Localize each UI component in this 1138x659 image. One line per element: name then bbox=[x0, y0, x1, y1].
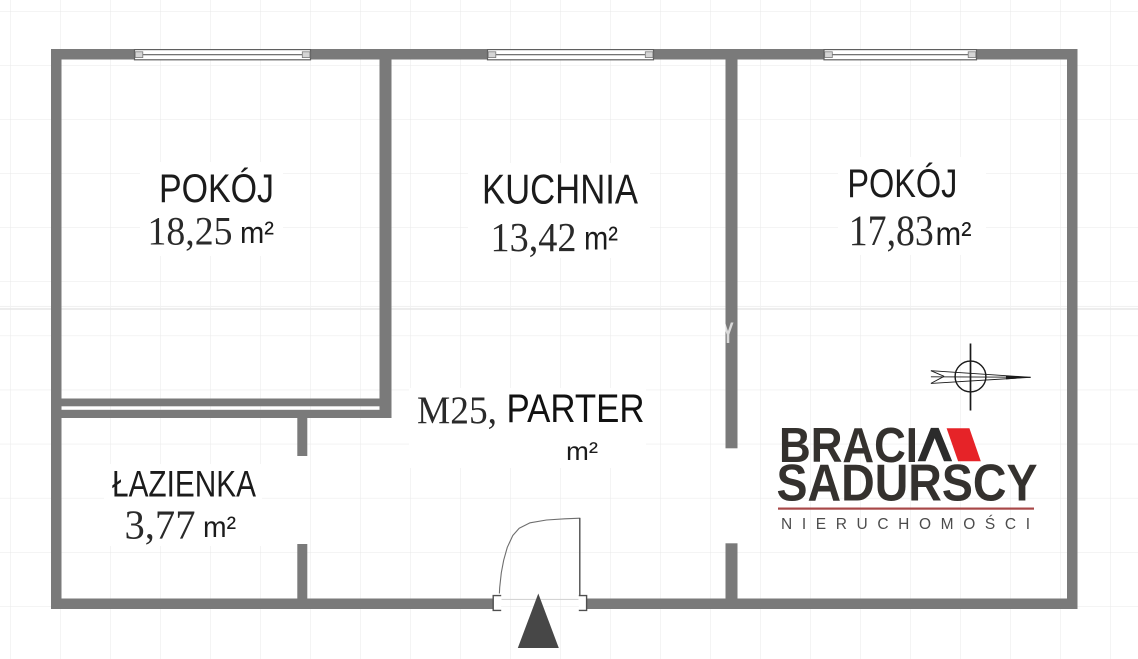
svg-text:POKÓJ: POKÓJ bbox=[847, 161, 957, 206]
svg-text:3,77: 3,77 bbox=[125, 501, 196, 547]
svg-text:KUCHNIA: KUCHNIA bbox=[482, 165, 638, 212]
svg-text:m²: m² bbox=[566, 436, 598, 466]
svg-text:m²: m² bbox=[203, 511, 236, 544]
svg-text:18,25: 18,25 bbox=[148, 209, 233, 254]
svg-text:ŁAZIENKA: ŁAZIENKA bbox=[112, 463, 256, 505]
svg-text:POKÓJ: POKÓJ bbox=[159, 166, 274, 211]
svg-text:M25,: M25, bbox=[417, 388, 497, 432]
svg-text:SADURSCY: SADURSCY bbox=[777, 454, 1038, 512]
svg-text:PARTER: PARTER bbox=[507, 387, 645, 431]
svg-text:Y: Y bbox=[722, 317, 734, 350]
svg-text:m²: m² bbox=[936, 215, 972, 252]
svg-text:13,42: 13,42 bbox=[491, 214, 577, 260]
svg-text:m²: m² bbox=[584, 220, 618, 257]
svg-text:NIERUCHOMOŚCI: NIERUCHOMOŚCI bbox=[781, 515, 1030, 533]
svg-text:m²: m² bbox=[240, 215, 274, 250]
svg-text:17,83: 17,83 bbox=[849, 207, 934, 255]
